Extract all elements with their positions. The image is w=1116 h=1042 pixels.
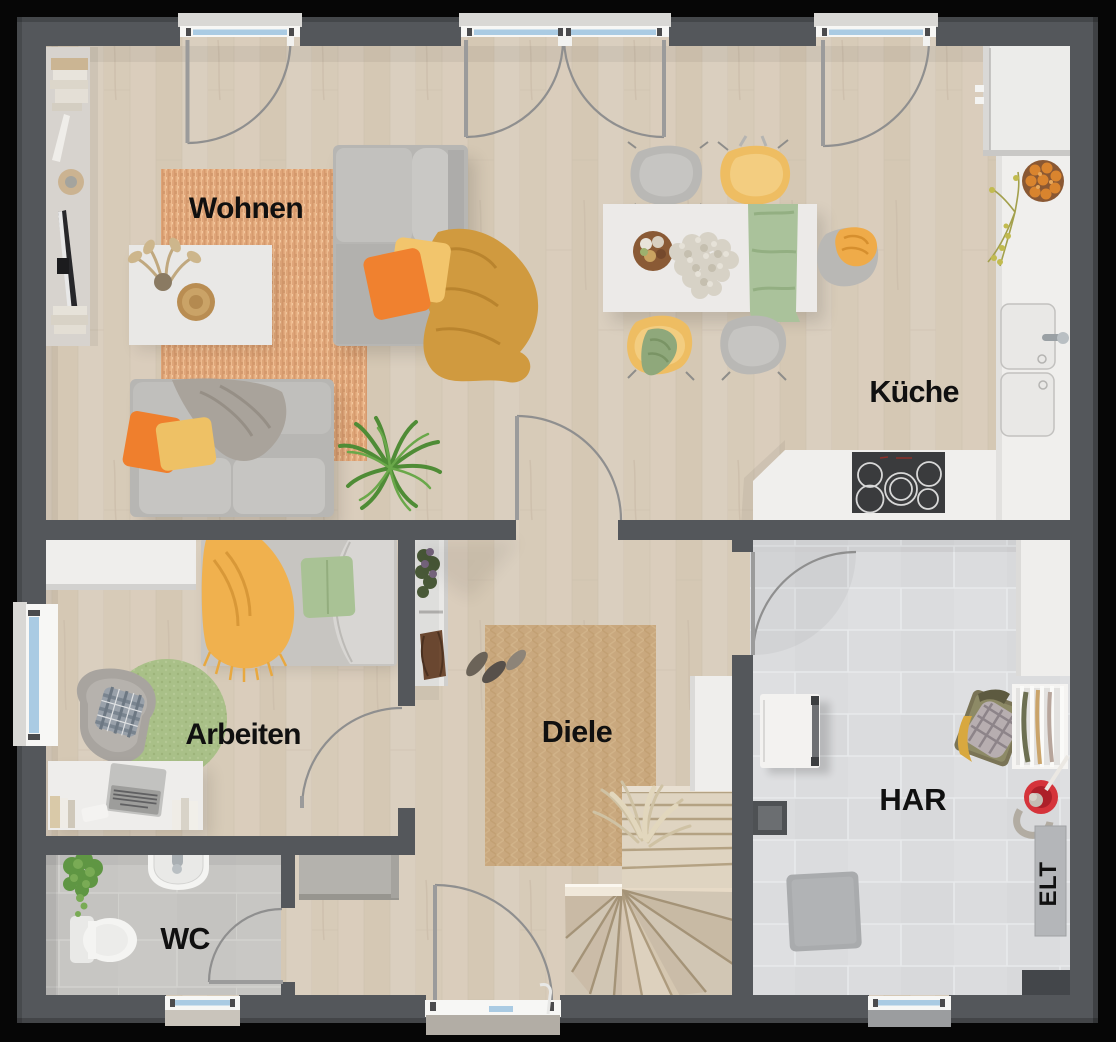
svg-text:HAR: HAR xyxy=(879,782,946,817)
svg-text:Wohnen: Wohnen xyxy=(189,192,303,225)
svg-text:ELT: ELT xyxy=(1035,861,1062,906)
svg-text:Arbeiten: Arbeiten xyxy=(185,718,300,751)
svg-text:Diele: Diele xyxy=(542,715,612,749)
svg-text:WC: WC xyxy=(160,922,210,956)
svg-text:Küche: Küche xyxy=(869,375,958,409)
